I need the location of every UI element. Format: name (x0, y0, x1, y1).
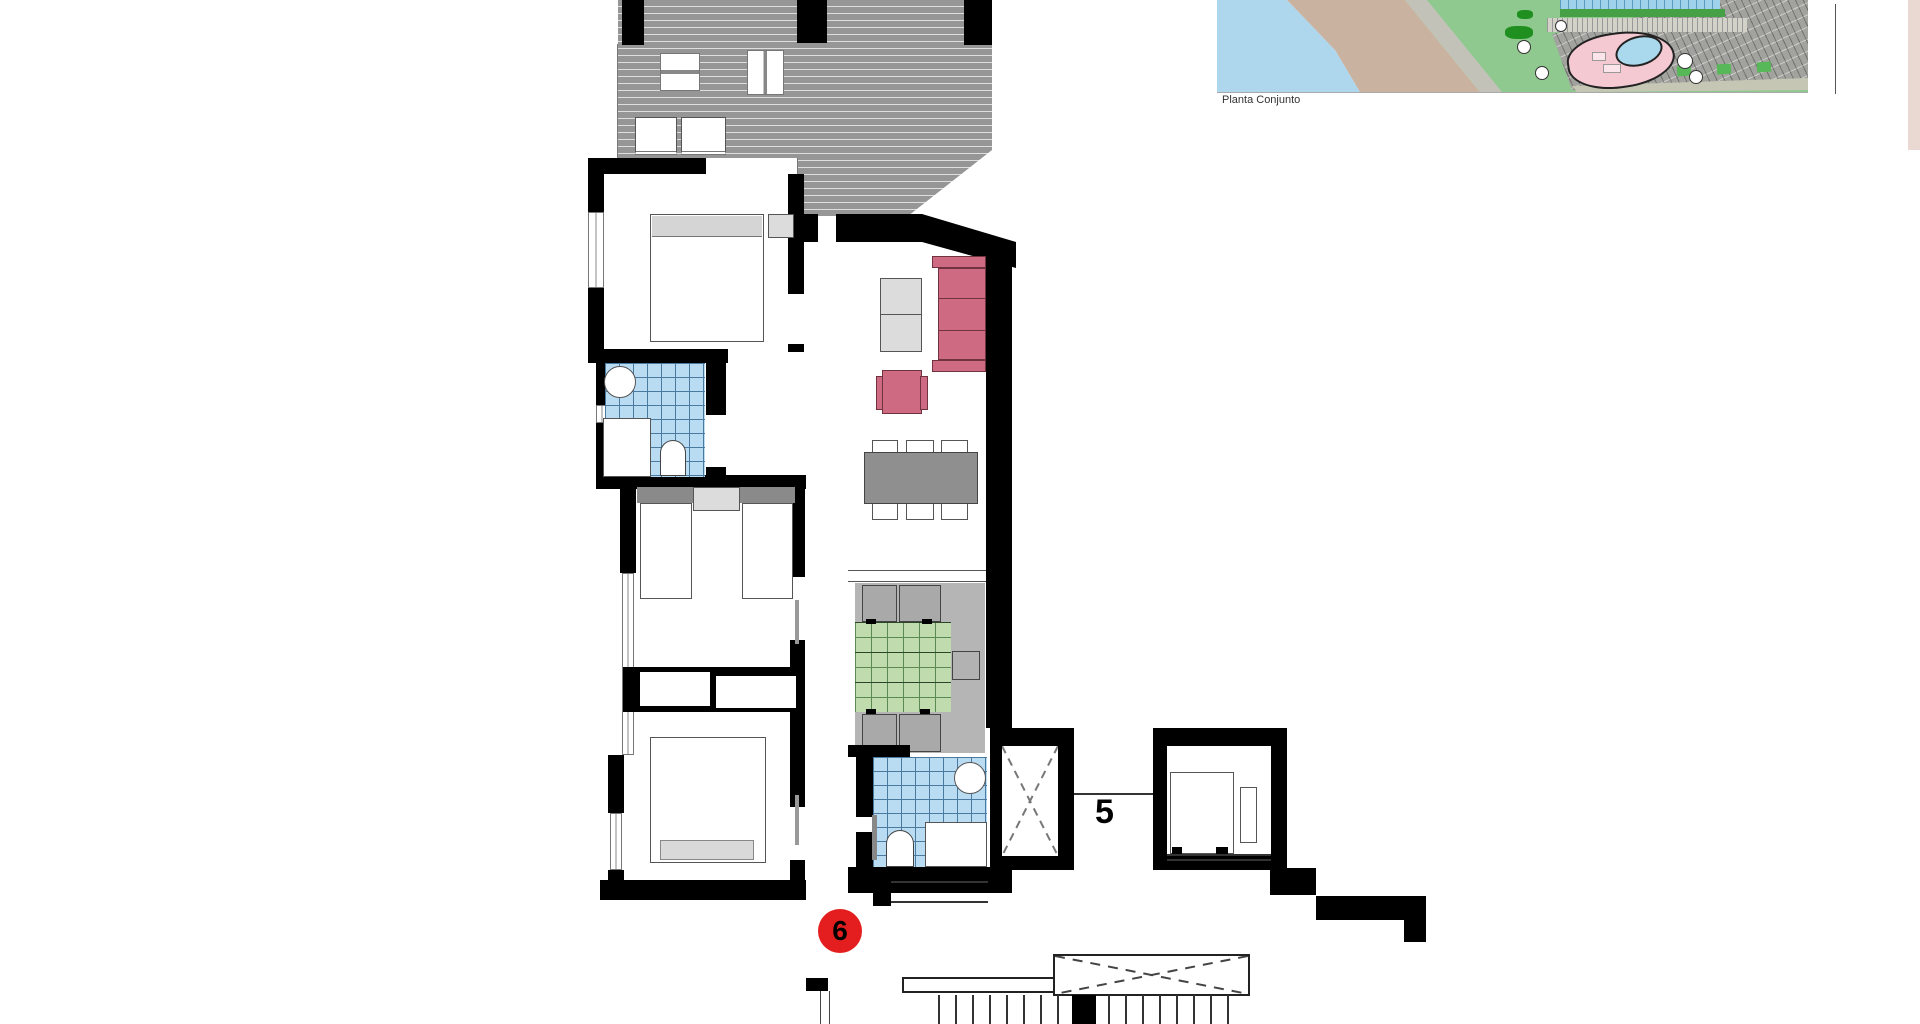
bed-single (742, 503, 793, 599)
site-deck-lounger (1603, 64, 1621, 73)
corridor-line (891, 901, 988, 903)
roof-chimney-stub (797, 0, 827, 43)
lounger (899, 585, 941, 622)
skylight (635, 117, 677, 155)
wall-left (588, 174, 604, 212)
armchair-pink-arm (920, 376, 928, 410)
sofa-two-seat-gray (880, 278, 922, 352)
window-bedroom2 (622, 573, 634, 755)
site-path-hatched (1547, 18, 1747, 32)
wall-right-main (986, 242, 1012, 728)
elevator-door-line (1167, 859, 1271, 861)
stair-landing (1053, 954, 1250, 996)
wall-living-top (836, 214, 922, 242)
site-bush (1517, 10, 1533, 19)
terrace-sliding-door (848, 570, 986, 582)
site-garden-patch (1717, 64, 1732, 75)
nightstand (768, 214, 794, 238)
lounger (862, 585, 897, 622)
wall-bedroom3-right (790, 860, 805, 900)
wall-bedroom2-right (790, 640, 805, 667)
bed-pillow (660, 840, 754, 860)
roof-chimney-stub (622, 0, 644, 45)
bed-pillow (652, 216, 762, 237)
page-edge-strip (1908, 0, 1920, 150)
armchair-pink-body (882, 370, 922, 414)
bed-single (640, 503, 692, 599)
corridor-post (873, 880, 891, 906)
elevator-car (1170, 772, 1234, 854)
door-leaf (795, 795, 799, 845)
site-tree (1689, 70, 1703, 84)
site-deck-lounger (1592, 52, 1606, 61)
site-hedge-row (1560, 9, 1725, 17)
unit-6-badge: 6 (818, 909, 862, 953)
wall-landing-right (1316, 896, 1426, 920)
unit-6-number: 6 (832, 915, 848, 947)
window-bedroom1 (588, 212, 604, 288)
door-frame-lines (820, 991, 830, 1024)
stair-post (1072, 995, 1096, 1024)
sofa-pink-cushion-line (939, 298, 985, 299)
wall-bath2-top (848, 745, 910, 757)
site-bush (1505, 26, 1533, 39)
unit-5-label: 5 (1095, 793, 1114, 832)
skylight (660, 53, 700, 91)
nightstand (693, 487, 740, 511)
wall-bath1-top (588, 349, 728, 363)
wall-bedroom3-bottom (600, 880, 806, 900)
wall-bedroom3-left (608, 755, 624, 813)
shower-tray (603, 418, 651, 477)
sofa-pink-armrest (932, 360, 986, 372)
site-tree (1517, 40, 1531, 54)
washbasin (604, 366, 636, 398)
stair-railing (902, 977, 1058, 993)
roof-chimney-stub (964, 0, 992, 45)
floor-plan-sheet: 5 6 (0, 0, 1920, 1024)
roof-eave-line (617, 44, 618, 158)
site-tree (1535, 66, 1549, 80)
stair-landing-x (1055, 956, 1248, 994)
elevator-panel (1240, 787, 1257, 843)
washbasin (954, 762, 986, 794)
wall-bedroom1-top (588, 158, 706, 174)
sofa-pink-armrest (932, 256, 986, 268)
site-tree (1677, 53, 1693, 69)
rug-edge-mark (866, 709, 876, 714)
site-plan (1217, 0, 1808, 93)
site-garden-patch (1757, 62, 1772, 73)
page-edge-line (1835, 4, 1836, 94)
sofa-pink-cushion-line (939, 330, 985, 331)
wardrobe-door (640, 672, 710, 706)
rug-edge-mark (922, 619, 932, 624)
vent-shaft-x (1002, 746, 1058, 856)
skylight (747, 50, 784, 95)
bath2-window (872, 815, 877, 860)
wall-living-top (800, 214, 818, 242)
shower-tray (925, 822, 987, 867)
wall-bath2-left (856, 757, 873, 817)
site-lap-pool (1560, 0, 1720, 9)
corridor-line (891, 881, 988, 883)
wall-bath1-right (706, 363, 726, 415)
site-caption: Planta Conjunto (1222, 94, 1300, 106)
sofa-gray-divider (881, 314, 921, 315)
site-tree (1555, 20, 1567, 32)
wall-landing-right (1404, 920, 1426, 942)
wardrobe-door (716, 676, 796, 708)
wall-landing-right (1270, 868, 1316, 895)
toilet (886, 830, 914, 867)
sofa-pink-body (938, 268, 986, 360)
side-table (952, 651, 980, 680)
vent-shaft-interior (1002, 746, 1058, 856)
wall-bedroom3-right (790, 712, 805, 807)
toilet (660, 440, 686, 476)
elevator-door-line (1167, 854, 1271, 856)
dining-table (864, 452, 978, 504)
stair-wall-stub (806, 978, 828, 991)
window-bedroom3 (610, 813, 622, 870)
wall-bedroom1-right (788, 344, 804, 352)
rug-edge-mark (920, 709, 930, 714)
rug-edge-mark (866, 619, 876, 624)
skylight (681, 117, 726, 155)
wall-bedroom2-left (620, 489, 636, 573)
green-rug (855, 622, 951, 712)
door-leaf (795, 600, 799, 644)
